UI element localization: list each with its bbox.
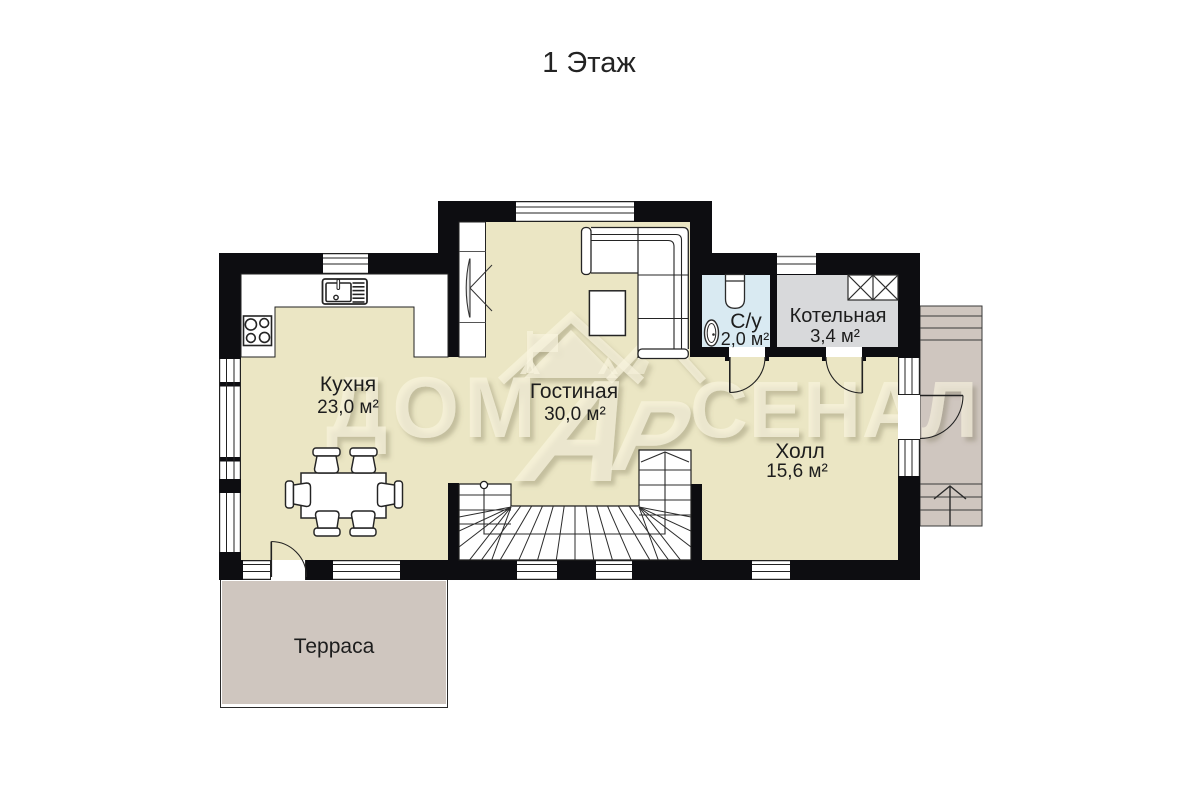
svg-text:1 Этаж: 1 Этаж bbox=[542, 47, 636, 79]
svg-text:2,0 м²: 2,0 м² bbox=[721, 329, 769, 349]
svg-text:Котельная: Котельная bbox=[790, 305, 887, 327]
svg-text:3,4 м²: 3,4 м² bbox=[810, 325, 860, 346]
svg-text:Гостиная: Гостиная bbox=[530, 380, 618, 403]
svg-text:30,0 м²: 30,0 м² bbox=[544, 404, 606, 425]
svg-text:Терраса: Терраса bbox=[294, 635, 375, 658]
svg-text:15,6 м²: 15,6 м² bbox=[766, 461, 828, 482]
svg-text:СЕНАЛ: СЕНАЛ bbox=[690, 365, 979, 454]
svg-text:Холл: Холл bbox=[775, 440, 825, 463]
svg-text:23,0 м²: 23,0 м² bbox=[317, 397, 379, 418]
svg-text:Кухня: Кухня bbox=[320, 373, 376, 396]
